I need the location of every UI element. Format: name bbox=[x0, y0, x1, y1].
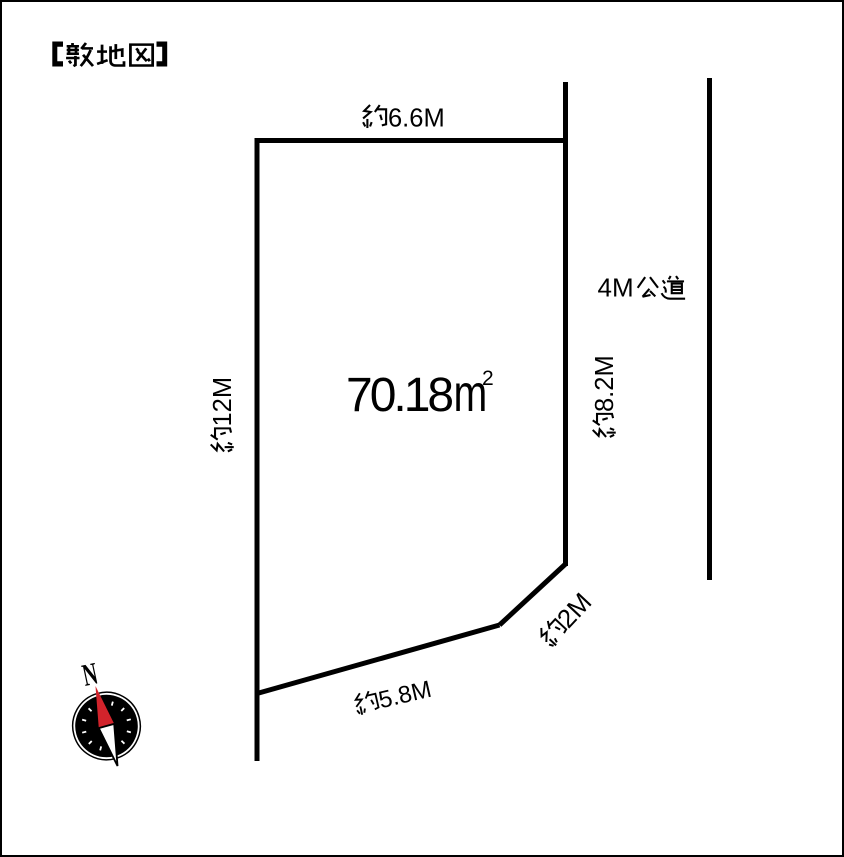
svg-text:2: 2 bbox=[482, 367, 494, 390]
svg-text:70.18: 70.18 bbox=[346, 369, 452, 422]
svg-text:12M: 12M bbox=[209, 377, 237, 427]
svg-text:4M: 4M bbox=[598, 273, 634, 303]
svg-text:6.6M: 6.6M bbox=[388, 105, 445, 133]
svg-text:8.2M: 8.2M bbox=[591, 355, 619, 412]
